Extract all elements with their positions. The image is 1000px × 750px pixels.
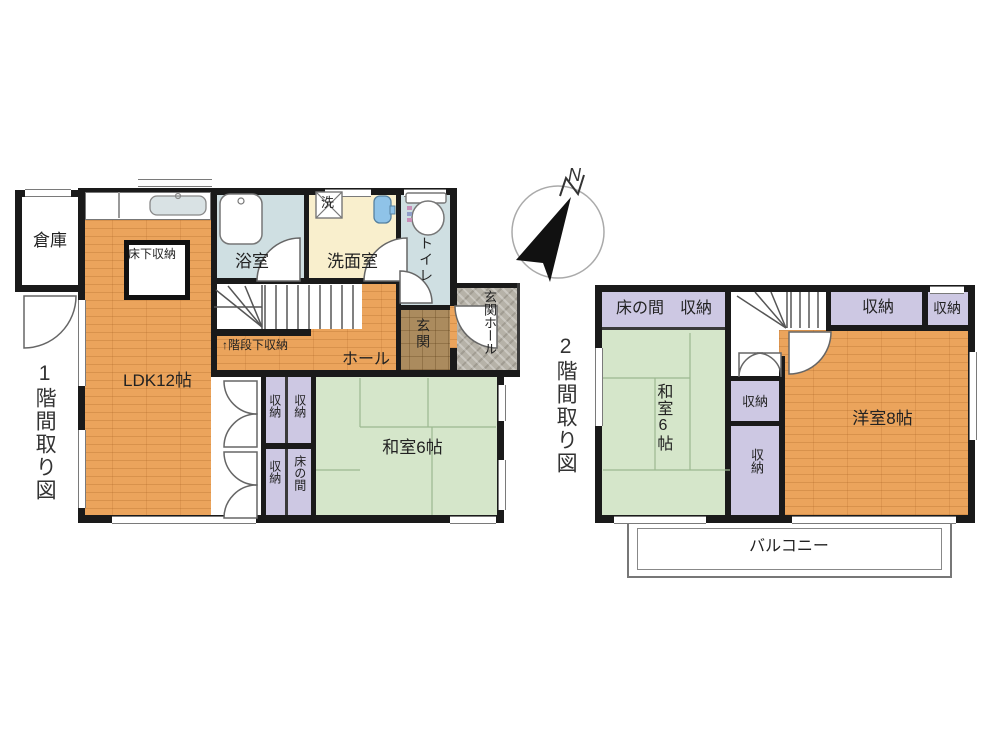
wall: [779, 356, 785, 523]
label-sentakuki: 洗: [321, 196, 334, 211]
label-souko: 倉庫: [20, 231, 80, 251]
kitchen-counter: [85, 192, 211, 220]
wall: [826, 285, 831, 330]
wall: [261, 377, 266, 522]
label-balcony: バルコニー: [740, 538, 838, 556]
label-shuno-mid2: 収納: [748, 448, 763, 498]
window: [930, 286, 964, 294]
window: [614, 516, 706, 524]
label-yokushitsu: 浴室: [222, 252, 282, 272]
wall: [826, 325, 975, 331]
wall: [731, 421, 779, 426]
label-kaidanshita-shuno: ↑階段下収納: [222, 339, 288, 353]
window: [969, 352, 977, 440]
label-hall: ホール: [335, 351, 397, 369]
label-genkan-hall: 玄関ホール: [481, 290, 496, 370]
compass-north-label: N: [568, 165, 581, 186]
window: [498, 385, 506, 421]
stairs-1f: [211, 283, 362, 329]
window: [138, 179, 212, 187]
wall: [311, 377, 316, 522]
label-senmenshitsu: 洗面室: [310, 252, 395, 272]
wall: [450, 188, 457, 306]
wall: [725, 285, 731, 523]
window: [595, 348, 603, 426]
wall: [211, 278, 401, 284]
label-shuno-b: 収納: [292, 394, 306, 440]
window: [78, 430, 86, 508]
label-shuno-top-2f: 収納: [862, 299, 894, 317]
wall: [15, 285, 85, 292]
wall: [211, 329, 311, 336]
window: [450, 516, 496, 524]
label-genkan: 玄関: [415, 318, 431, 368]
wall: [922, 288, 928, 328]
wall: [602, 327, 731, 330]
wall: [304, 188, 309, 283]
stairs-2f: [731, 292, 826, 330]
wall: [595, 285, 975, 292]
floor1-title: 1階間取り図: [32, 362, 56, 522]
label-shuno-strip-2f: 収納: [680, 300, 712, 318]
window: [112, 516, 256, 524]
window: [78, 300, 86, 386]
window: [498, 460, 506, 510]
window: [792, 516, 956, 524]
label-yukashita-shuno: 床下収納: [126, 248, 178, 262]
compass-icon: [512, 175, 604, 282]
kitchen-counter-divider: [118, 192, 120, 218]
floorplan-canvas: 倉庫 床下収納 LDK12帖 浴室 洗 洗面室 トイレ ↑階段下収納 ホール 玄…: [0, 0, 1000, 750]
window: [25, 189, 71, 197]
label-shuno-a: 収納: [267, 394, 281, 440]
wall: [211, 370, 520, 377]
wall: [455, 283, 520, 288]
wall: [261, 443, 316, 449]
floor2-title: 2階間取り図: [553, 335, 577, 495]
label-tokonoma-1f: 床の間: [292, 455, 306, 510]
room-ldk: [78, 188, 211, 522]
label-washitsu-1f: 和室6帖: [365, 438, 460, 458]
label-washitsu-2f: 和室6帖: [653, 383, 671, 455]
label-shuno-c: 収納: [267, 460, 281, 506]
label-shuno-corner-2f: 収納: [933, 300, 961, 316]
label-yoshitsu: 洋室8帖: [835, 409, 930, 429]
window: [404, 189, 446, 197]
label-toilet: トイレ: [418, 236, 434, 308]
landing-2f: [731, 330, 779, 380]
label-shuno-mid1: 収納: [742, 395, 768, 410]
wall: [731, 376, 779, 381]
wall: [517, 283, 520, 375]
label-tokonoma-2f: 床の間: [616, 300, 664, 318]
label-ldk: LDK12帖: [110, 371, 205, 391]
